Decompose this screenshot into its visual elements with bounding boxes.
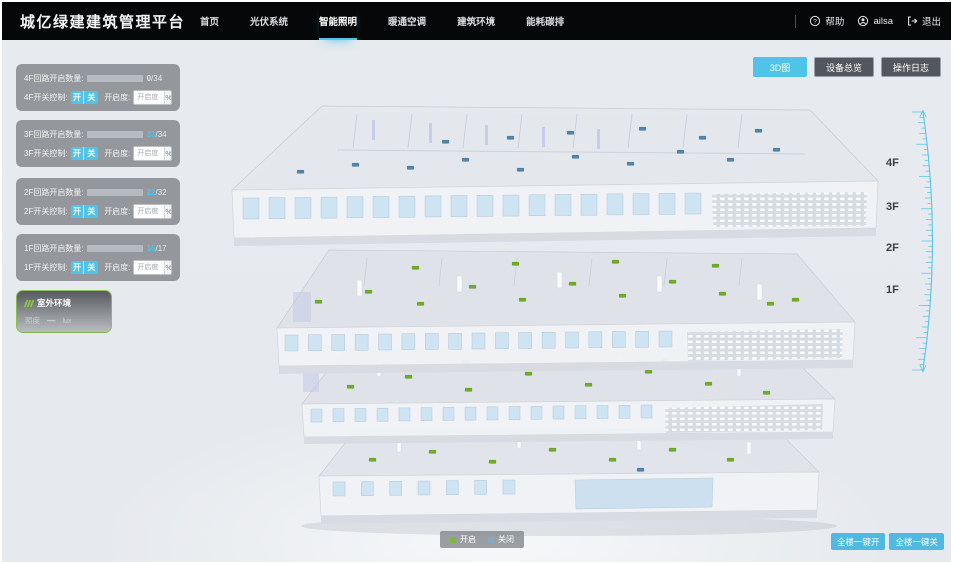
off-swatch xyxy=(488,537,494,543)
switch-control-label: 3F开关控制: xyxy=(24,148,68,159)
circuit-count-label: 3F回路开启数量: xyxy=(24,129,84,140)
circuit-count-row: 4F回路开启数量: 0/34 xyxy=(24,71,172,86)
floor-3f-model[interactable] xyxy=(277,250,855,374)
top-bar: 城亿绿建建筑管理平台 首页 光伏系统 智能照明 暖通空调 建筑环境 能耗碳排 ?… xyxy=(2,2,951,40)
circuit-count-value: 22/32 xyxy=(147,188,167,197)
circuit-progress-bar xyxy=(87,245,143,252)
app-window: 城亿绿建建筑管理平台 首页 光伏系统 智能照明 暖通空调 建筑环境 能耗碳排 ?… xyxy=(2,2,951,562)
switch-off-button[interactable]: 关 xyxy=(84,147,98,160)
floor-tag-4f[interactable]: 4F xyxy=(886,157,899,169)
circuit-count-row: 3F回路开启数量: 33/34 xyxy=(24,127,172,142)
percent-button[interactable]: % xyxy=(164,91,172,104)
illuminance-value: — xyxy=(47,315,56,325)
floor-panel-1f: 1F回路开启数量: 16/17 1F开关控制: 开 关 开启度: % xyxy=(16,234,180,281)
floor-panel-3f: 3F回路开启数量: 33/34 3F开关控制: 开 关 开启度: % xyxy=(16,120,180,167)
switch-group: 开 关 xyxy=(71,261,99,274)
outdoor-env-header: 室外环境 xyxy=(25,297,103,309)
dim-control: % xyxy=(133,146,172,161)
building-3d-model xyxy=(207,48,951,553)
nav-item-smart-lighting[interactable]: 智能照明 xyxy=(319,2,357,40)
illuminance-row: 照度 — lux xyxy=(25,315,103,326)
dim-label: 开启度: xyxy=(104,148,130,159)
view-toolbar: 3D图 设备总览 操作日志 xyxy=(753,57,941,77)
dim-input[interactable] xyxy=(134,147,164,160)
illuminance-unit: lux xyxy=(63,318,72,325)
building-3d-canvas[interactable] xyxy=(207,48,951,553)
dim-label: 开启度: xyxy=(104,262,130,273)
user-menu[interactable]: ailsa xyxy=(857,15,893,27)
switch-on-button[interactable]: 开 xyxy=(71,147,85,160)
bottom-actions: 全楼一键开 全楼一键关 xyxy=(831,533,944,550)
view-3d-button[interactable]: 3D图 xyxy=(753,57,807,77)
circuit-count-value: 33/34 xyxy=(147,130,167,139)
circuit-progress-bar xyxy=(87,189,143,196)
help-label: 帮助 xyxy=(825,14,844,28)
switch-control-label: 2F开关控制: xyxy=(24,206,68,217)
help-button[interactable]: ? 帮助 xyxy=(809,14,844,28)
main-area: 3D图 设备总览 操作日志 4F回路开启数量: 0/34 4F开关控制: 开 关… xyxy=(2,40,951,562)
help-icon: ? xyxy=(809,15,821,27)
circuit-count-value: 0/34 xyxy=(147,74,163,83)
logout-icon xyxy=(906,15,918,27)
floor-tag-3f[interactable]: 3F xyxy=(886,201,899,213)
floor-scale-ruler xyxy=(912,110,933,372)
switch-off-button[interactable]: 关 xyxy=(84,91,98,104)
nav-item-pv-system[interactable]: 光伏系统 xyxy=(250,2,288,40)
switch-control-label: 1F开关控制: xyxy=(24,262,68,273)
svg-text:?: ? xyxy=(814,18,818,25)
user-icon xyxy=(857,15,869,27)
circuit-count-label: 1F回路开启数量: xyxy=(24,243,84,254)
main-nav: 首页 光伏系统 智能照明 暖通空调 建筑环境 能耗碳排 xyxy=(200,2,564,40)
logout-button[interactable]: 退出 xyxy=(906,14,941,28)
illuminance-label: 照度 xyxy=(25,315,40,326)
device-overview-button[interactable]: 设备总览 xyxy=(814,57,874,77)
floor-panel-2f: 2F回路开启数量: 22/32 2F开关控制: 开 关 开启度: % xyxy=(16,178,180,225)
divider xyxy=(795,15,796,28)
dim-input[interactable] xyxy=(134,205,164,218)
floor-tag-1f[interactable]: 1F xyxy=(886,284,899,296)
username: ailsa xyxy=(873,16,893,27)
floor-tag-2f[interactable]: 2F xyxy=(886,242,899,254)
outdoor-env-title: 室外环境 xyxy=(37,297,71,309)
switch-control-row: 4F开关控制: 开 关 开启度: % xyxy=(24,90,172,105)
on-label: 开启 xyxy=(460,534,476,545)
switch-control-row: 2F开关控制: 开 关 开启度: % xyxy=(24,204,172,219)
switch-group: 开 关 xyxy=(71,205,99,218)
switch-control-label: 4F开关控制: xyxy=(24,92,68,103)
off-label: 关闭 xyxy=(498,534,514,545)
nav-item-home[interactable]: 首页 xyxy=(200,2,219,40)
switch-control-row: 3F开关控制: 开 关 开启度: % xyxy=(24,146,172,161)
switch-on-button[interactable]: 开 xyxy=(71,261,85,274)
circuit-count-row: 1F回路开启数量: 16/17 xyxy=(24,241,172,256)
dim-control: % xyxy=(133,260,172,275)
switch-group: 开 关 xyxy=(71,91,99,104)
dim-label: 开启度: xyxy=(104,92,130,103)
nav-item-energy-carbon[interactable]: 能耗碳排 xyxy=(526,2,564,40)
circuit-count-label: 2F回路开启数量: xyxy=(24,187,84,198)
percent-button[interactable]: % xyxy=(164,205,172,218)
operation-log-button[interactable]: 操作日志 xyxy=(881,57,941,77)
legend-item-off: 关闭 xyxy=(488,534,514,545)
on-swatch xyxy=(450,537,456,543)
legend-item-on: 开启 xyxy=(450,534,476,545)
switch-on-button[interactable]: 开 xyxy=(71,205,85,218)
circuit-count-label: 4F回路开启数量: xyxy=(24,73,84,84)
nav-item-hvac[interactable]: 暖通空调 xyxy=(388,2,426,40)
switch-on-button[interactable]: 开 xyxy=(71,91,85,104)
switch-off-button[interactable]: 关 xyxy=(84,205,98,218)
all-off-button[interactable]: 全楼一键关 xyxy=(889,533,944,550)
dim-control: % xyxy=(133,204,172,219)
circuit-count-value: 16/17 xyxy=(147,244,167,253)
logout-label: 退出 xyxy=(922,14,941,28)
light-status-legend: 开启 关闭 xyxy=(440,531,524,548)
platform-title: 城亿绿建建筑管理平台 xyxy=(20,11,185,32)
circuit-progress-bar xyxy=(87,75,143,82)
nav-item-building-env[interactable]: 建筑环境 xyxy=(457,2,495,40)
circuit-progress-bar xyxy=(87,131,143,138)
outdoor-env-panel: 室外环境 照度 — lux xyxy=(16,290,112,333)
circuit-count-row: 2F回路开启数量: 22/32 xyxy=(24,185,172,200)
dim-input[interactable] xyxy=(134,261,164,274)
switch-group: 开 关 xyxy=(71,147,99,160)
switch-off-button[interactable]: 关 xyxy=(84,261,98,274)
switch-control-row: 1F开关控制: 开 关 开启度: % xyxy=(24,260,172,275)
floor-panel-4f: 4F回路开启数量: 0/34 4F开关控制: 开 关 开启度: % xyxy=(16,64,180,111)
dim-control: % xyxy=(133,90,172,105)
floor-4f-model[interactable] xyxy=(232,106,878,246)
dim-label: 开启度: xyxy=(104,206,130,217)
dim-input[interactable] xyxy=(134,91,164,104)
all-on-button[interactable]: 全楼一键开 xyxy=(831,533,886,550)
top-right-cluster: ? 帮助 ailsa 退出 xyxy=(795,2,941,40)
percent-button[interactable]: % xyxy=(164,261,172,274)
slashes-icon xyxy=(25,300,33,307)
percent-button[interactable]: % xyxy=(164,147,172,160)
